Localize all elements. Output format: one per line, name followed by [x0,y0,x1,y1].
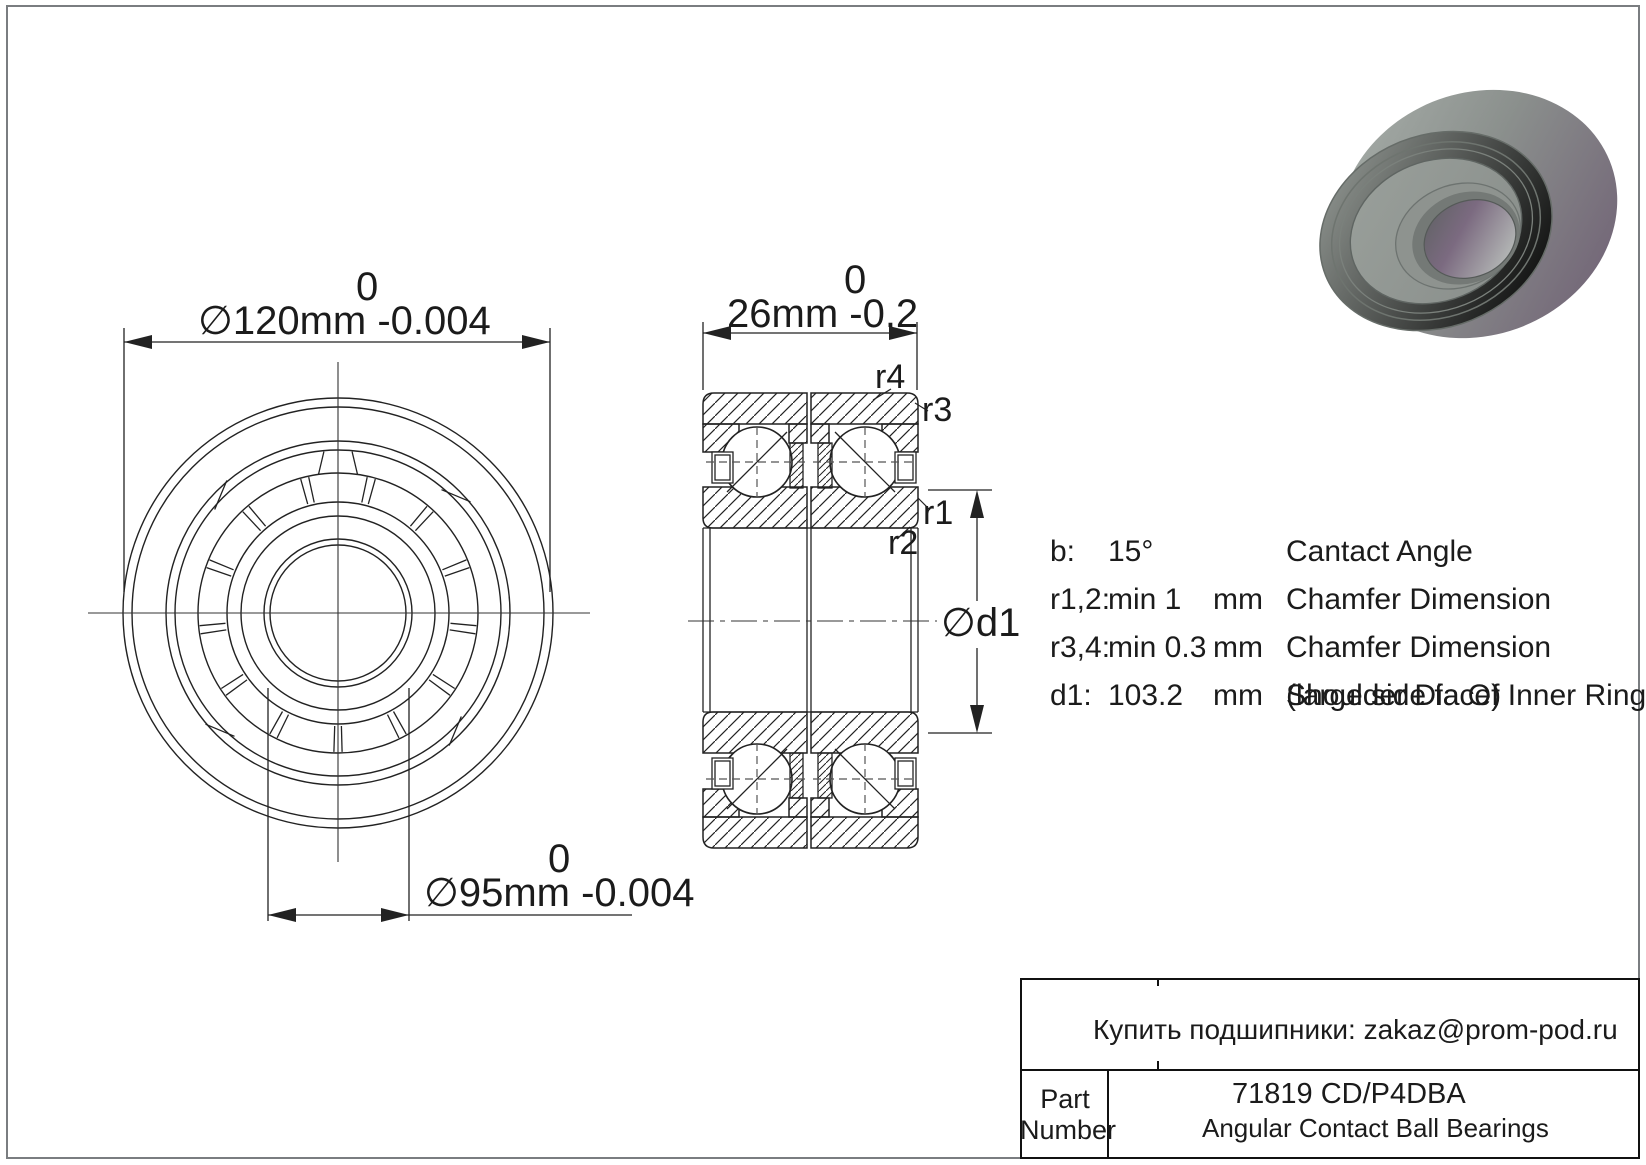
spec-param: r1,2: [1050,584,1110,615]
spec-row-chamfer-r34: r3,4: min 0.3 mm Chamfer Dimension [1050,632,1630,680]
title-block-tick-mid [1157,1061,1159,1069]
label-d1: ∅d1 [941,601,1020,645]
spec-unit: mm [1213,680,1263,711]
arrowhead-up [970,490,984,518]
spec-row-contact-angle: b: 15° Cantact Angle [1050,536,1630,584]
spec-value: min 0.3 [1108,632,1206,663]
part-number-label: Part Number [1020,1084,1110,1146]
title-block-tick-top [1157,978,1159,986]
bearing-3d-render [1290,49,1646,380]
arrowhead-left [124,335,152,349]
spec-param: b: [1050,536,1075,567]
od-dimension-text: ∅120mm -0.004 [198,299,491,343]
section-view [688,393,937,848]
spec-desc: Chamfer Dimension [1286,632,1551,663]
bearing-category: Angular Contact Ball Bearings [1202,1113,1549,1144]
spec-value: min 1 [1108,584,1181,615]
part-number-value: 71819 CD/P4DBA [1232,1078,1466,1111]
spec-unit: mm [1213,632,1263,663]
bore-dimension: ∅95mm -0.004 0 [268,688,695,922]
label-r1: r1 [923,494,953,532]
arrowhead-right [381,908,409,922]
label-r3: r3 [922,391,952,429]
spec-desc: Cantact Angle [1286,536,1473,567]
contact-email-line: Купить подшипники: zakaz@prom-pod.ru [1093,1014,1618,1046]
spec-row-shoulder-dia: d1: 103.2 mm Shoulder Dia Of Inner Ring … [1050,680,1630,728]
od-dimension: ∅120mm -0.004 0 [124,265,550,592]
arrowhead-left [268,908,296,922]
spec-param: r3,4: [1050,632,1110,663]
spec-row-chamfer-r12: r1,2: min 1 mm Chamfer Dimension [1050,584,1630,632]
spec-value: 103.2 [1108,680,1183,711]
od-tolerance-top: 0 [356,265,378,309]
arrowhead-right [522,335,550,349]
spec-desc-line2: (large side face) [1286,680,1501,711]
part-label-line2: Number [1020,1115,1110,1146]
label-r4: r4 [875,358,905,396]
spec-unit: mm [1213,584,1263,615]
front-view-centerlines [88,362,590,862]
part-label-line1: Part [1020,1084,1110,1115]
width-dimension-text: 26mm -0.2 [727,292,918,336]
spec-value: 15° [1108,536,1153,567]
spec-param: d1: [1050,680,1092,711]
engineering-drawing-page: ∅120mm -0.004 0 ∅95mm -0.004 0 [0,0,1646,1165]
width-tolerance-top: 0 [844,258,866,302]
label-r2: r2 [888,524,918,562]
title-block-divider-horizontal [1020,1069,1640,1071]
arrowhead-down [970,705,984,733]
bore-tolerance-top: 0 [548,837,570,881]
spec-desc: Chamfer Dimension [1286,584,1551,615]
